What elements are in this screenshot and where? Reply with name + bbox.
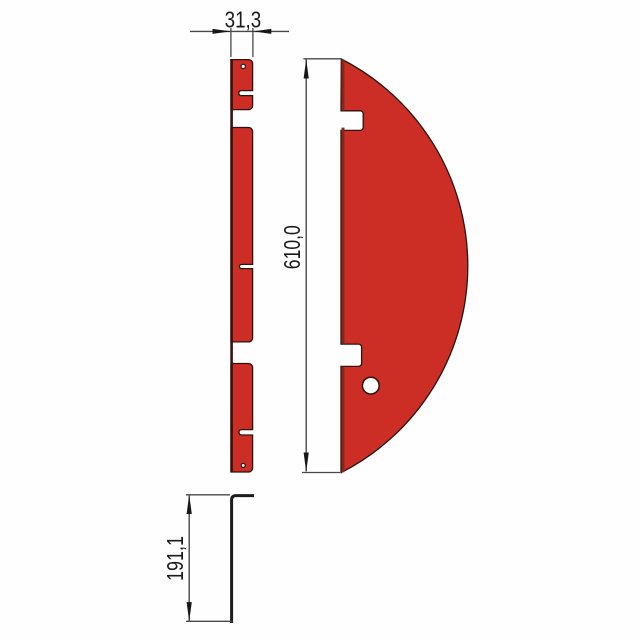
svg-text:31,3: 31,3 — [225, 7, 262, 33]
svg-text:610,0: 610,0 — [279, 225, 305, 269]
svg-text:191,1: 191,1 — [162, 536, 188, 581]
